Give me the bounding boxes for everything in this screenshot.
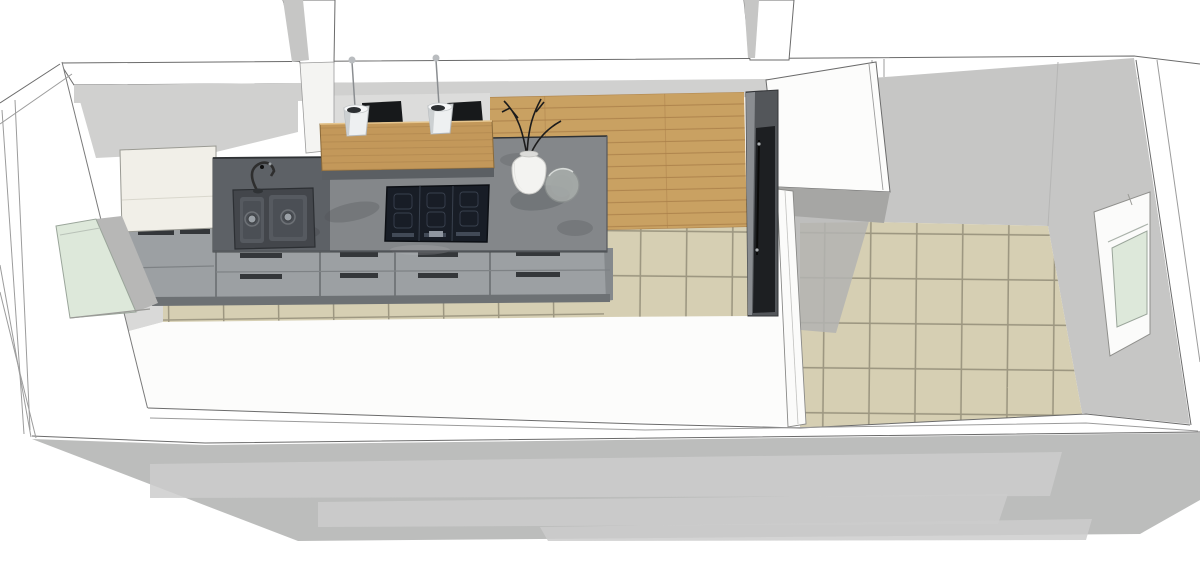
drawer-handle-slot <box>340 273 378 278</box>
fridge-column <box>746 90 778 316</box>
faucet-glint <box>269 163 272 166</box>
pendant-lamp <box>344 105 369 136</box>
right-window-glass <box>1112 231 1147 327</box>
fridge-door-panel <box>753 126 775 313</box>
glass-bowl-inner <box>551 175 573 197</box>
kitchen-3d-render <box>0 0 1200 579</box>
cream-cabinet <box>120 146 216 232</box>
counter-blotch <box>557 220 593 236</box>
fridge-handle-cap <box>757 142 760 145</box>
induction-cooktop <box>385 185 489 242</box>
fridge-handle-cap <box>755 248 758 251</box>
drawer-handle-slot <box>240 253 282 258</box>
pendant-opening <box>431 105 445 111</box>
pendant-canopy <box>433 55 440 62</box>
counter-highlight <box>390 245 450 255</box>
vase-mouth <box>520 151 538 157</box>
drawer-handle-slot <box>418 273 458 278</box>
tiles-before-fridge <box>604 227 750 317</box>
sink-drain <box>248 215 256 223</box>
vase <box>512 155 546 194</box>
cream-cabinet-top <box>120 146 216 232</box>
sink-drain <box>284 213 292 221</box>
pendant-opening <box>347 107 361 113</box>
drawer-handle-slot <box>516 272 560 277</box>
closet-block-top <box>766 62 890 192</box>
drawer-handle-slot <box>240 274 282 279</box>
pendant-canopy <box>349 57 356 64</box>
render-canvas <box>0 0 1200 579</box>
faucet-lever <box>260 165 264 169</box>
pendant-lamp <box>428 103 453 134</box>
drawer-handle-slot <box>340 252 378 257</box>
faucet-base <box>253 189 263 194</box>
kitchen-white-floor <box>122 316 796 426</box>
